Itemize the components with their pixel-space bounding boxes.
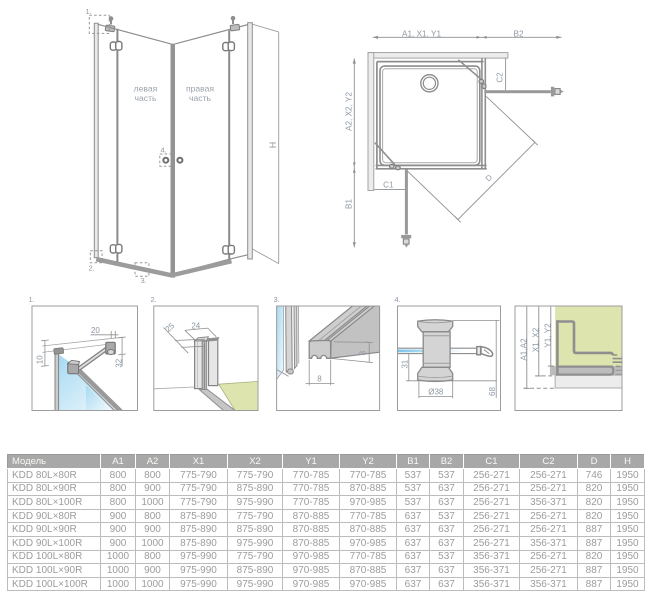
svg-text:20: 20 — [91, 326, 100, 335]
svg-text:31: 31 — [400, 359, 409, 368]
svg-text:1.: 1. — [29, 295, 35, 304]
svg-text:правая: правая — [186, 84, 214, 94]
svg-text:левая: левая — [134, 84, 158, 94]
svg-text:C1: C1 — [383, 181, 394, 190]
svg-text:часть: часть — [189, 93, 211, 103]
svg-text:A1, X1, Y1: A1, X1, Y1 — [402, 29, 441, 38]
svg-text:8: 8 — [358, 350, 367, 355]
svg-text:A2, X2, Y2: A2, X2, Y2 — [345, 92, 354, 131]
svg-text:24: 24 — [191, 321, 200, 330]
svg-text:Ø38: Ø38 — [428, 387, 444, 396]
svg-text:D: D — [484, 173, 495, 184]
svg-text:3.: 3. — [141, 276, 147, 285]
svg-text:B1: B1 — [345, 199, 354, 209]
svg-text:X1, X2: X1, X2 — [531, 327, 540, 352]
svg-text:25: 25 — [164, 321, 177, 334]
svg-text:3.: 3. — [274, 295, 280, 304]
svg-text:A1,A2: A1,A2 — [519, 338, 528, 361]
svg-text:4.: 4. — [161, 146, 167, 155]
svg-text:4.: 4. — [395, 295, 401, 304]
svg-text:2.: 2. — [151, 295, 157, 304]
svg-text:32: 32 — [114, 358, 123, 367]
svg-text:C2: C2 — [496, 72, 505, 83]
svg-text:10: 10 — [35, 355, 44, 364]
svg-text:Y1, Y2: Y1, Y2 — [543, 323, 552, 348]
svg-text:B2: B2 — [513, 29, 523, 38]
svg-text:часть: часть — [135, 93, 157, 103]
svg-text:1.: 1. — [86, 7, 92, 16]
svg-text:H: H — [268, 142, 278, 149]
svg-text:8: 8 — [317, 375, 322, 384]
svg-text:2.: 2. — [89, 264, 95, 273]
svg-text:68: 68 — [488, 387, 497, 396]
